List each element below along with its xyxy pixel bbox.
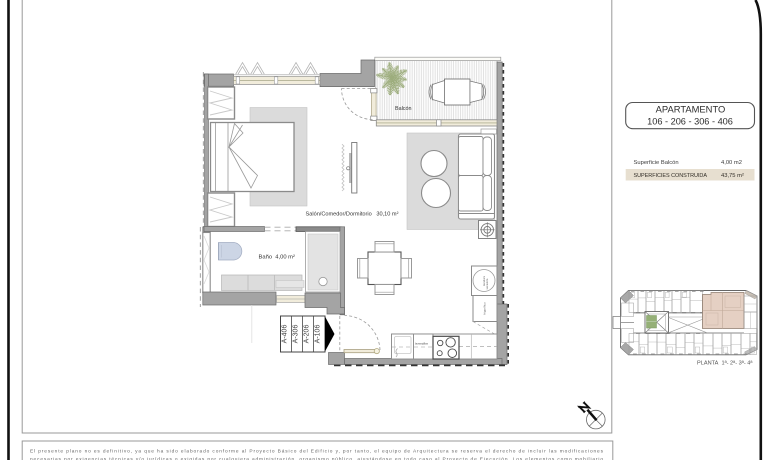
svg-text:43,75 m²: 43,75 m² xyxy=(721,173,744,179)
svg-text:PLANTA 1ª- 2ª- 3ª- 4ª: PLANTA 1ª- 2ª- 3ª- 4ª xyxy=(697,360,753,367)
svg-text:El presente plano no es defini: El presente plano no es definitivo, ya q… xyxy=(30,449,604,455)
svg-text:SUPERFICIES CONSTRUIDA: SUPERFICIES CONSTRUIDA xyxy=(634,173,708,179)
svg-text:frigorífico: frigorífico xyxy=(483,302,487,315)
svg-text:4,00 m2: 4,00 m2 xyxy=(721,160,742,166)
svg-text:106 - 206 - 306 - 406: 106 - 206 - 306 - 406 xyxy=(647,117,733,127)
svg-text:A-406: A-406 xyxy=(282,325,289,344)
svg-text:A-106: A-106 xyxy=(315,325,322,344)
svg-text:A-206: A-206 xyxy=(304,325,311,344)
svg-text:necesarias por exigencias técn: necesarias por exigencias técnicas y/o j… xyxy=(30,457,603,460)
svg-text:APARTAMENTO: APARTAMENTO xyxy=(656,104,726,115)
svg-text:Balcón: Balcón xyxy=(395,106,411,112)
svg-text:Baño 4,00 m²: Baño 4,00 m² xyxy=(259,255,295,261)
svg-text:A-306: A-306 xyxy=(293,325,300,344)
svg-text:secadora: secadora xyxy=(485,278,489,289)
svg-text:lavavajillas: lavavajillas xyxy=(415,342,429,346)
svg-text:Superficie Balcón: Superficie Balcón xyxy=(634,160,679,166)
svg-text:Salón/Comedor/Dormitorio 30,: Salón/Comedor/Dormitorio 30,10 m² xyxy=(306,212,399,218)
